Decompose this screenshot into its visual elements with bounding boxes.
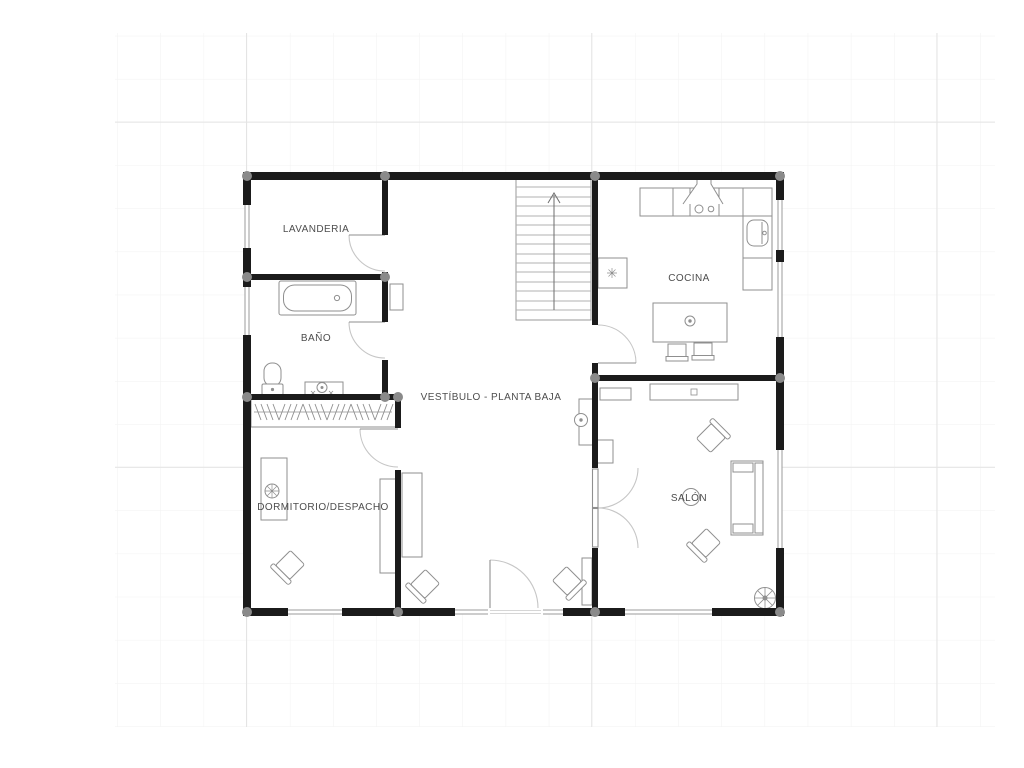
salon-door-leaf-bottom (593, 509, 599, 548)
salon-wall-unit (597, 440, 613, 463)
floor-plan: LAVANDERIA BAÑO COCINA VESTÍBULO - PLANT… (242, 171, 785, 617)
column-marker (242, 171, 252, 181)
label-salon: SALÓN (671, 491, 707, 504)
salon-sofa (731, 461, 763, 535)
column-marker (590, 607, 600, 617)
column-marker (242, 272, 252, 282)
column-marker (380, 272, 390, 282)
column-marker (775, 607, 785, 617)
column-marker (393, 607, 403, 617)
column-marker (242, 607, 252, 617)
column-marker (590, 171, 600, 181)
salon-door-leaf-top (593, 469, 599, 508)
column-marker (775, 373, 785, 383)
column-marker (242, 392, 252, 402)
hall-radiator (390, 284, 403, 310)
bathtub-icon (279, 281, 356, 315)
column-marker (775, 171, 785, 181)
desk-stool-icon (265, 484, 279, 498)
kitchen-appliance (598, 258, 627, 288)
column-marker (380, 171, 390, 181)
label-lavanderia: LAVANDERIA (283, 224, 349, 235)
salon-shelf (600, 388, 631, 400)
label-cocina: COCINA (668, 273, 710, 284)
column-marker (393, 392, 403, 402)
label-vestibulo: VESTÍBULO - PLANTA BAJA (421, 390, 562, 403)
salon-sideboard (650, 384, 738, 400)
staircase (516, 178, 591, 320)
hall-bookshelf (402, 473, 422, 557)
appliance-asterisk-icon (607, 268, 617, 278)
column-marker (590, 373, 600, 383)
floor-plan-canvas: LAVANDERIA BAÑO COCINA VESTÍBULO - PLANT… (0, 0, 1024, 768)
kitchen-sink-icon (747, 220, 768, 246)
column-marker (380, 392, 390, 402)
ceiling-fan-icon (755, 588, 776, 609)
bedroom-wardrobe (380, 479, 397, 573)
label-bano: BAÑO (301, 331, 331, 344)
kitchen-island (653, 303, 727, 342)
label-dormitorio: DORMITORIO/DESPACHO (257, 502, 389, 513)
toilet-icon (262, 363, 283, 395)
stove-icon (690, 202, 719, 216)
